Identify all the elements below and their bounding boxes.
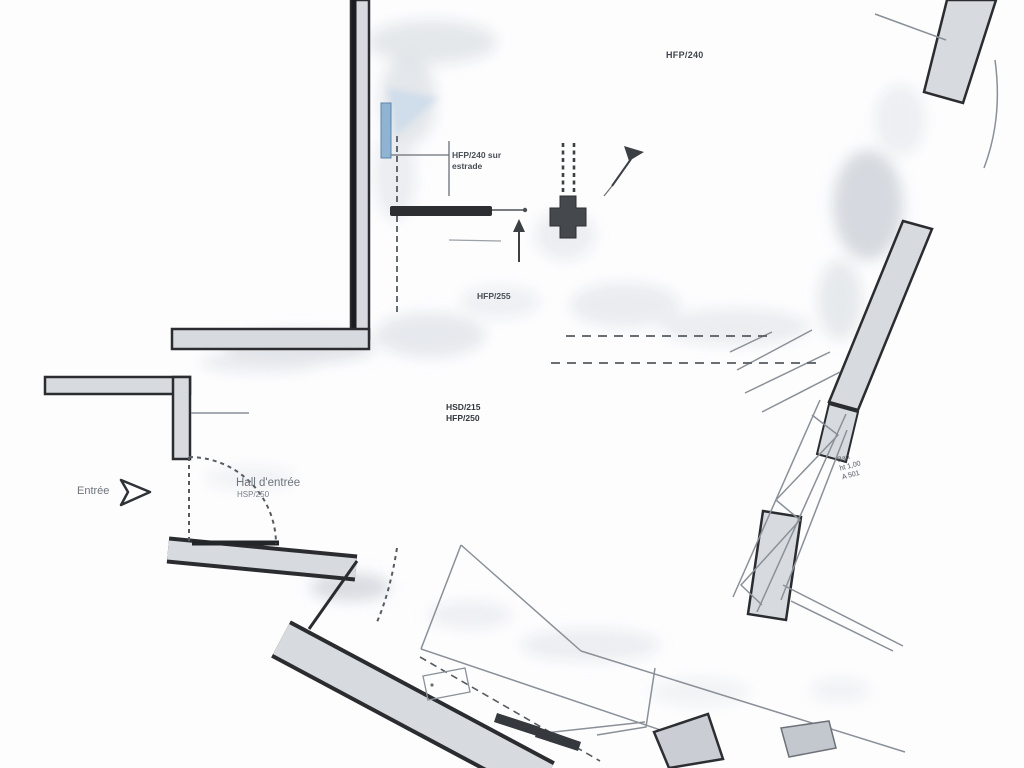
wall-entry-horizontal [45, 377, 190, 394]
floor-plan-scan: HFP/240 HFP/240 sur estrade HFP/255 HSD/… [0, 0, 1024, 768]
topright-thin-wall-line [875, 14, 946, 40]
dashed-lines [189, 136, 823, 761]
scan-smudges [200, 20, 925, 706]
dark-bar-2 [535, 727, 581, 751]
wall-bottom-diagonal-fill [281, 639, 545, 768]
flag-marker [604, 146, 644, 196]
label-entrance: Entrée [77, 485, 109, 497]
topright-door-arc [984, 60, 997, 168]
label-hall-2: HSP/250 [237, 490, 270, 499]
label-estrade-2: estrade [452, 161, 483, 171]
label-bench: Ban ht 1,00 A 501 [837, 452, 864, 482]
platform-edge [545, 722, 645, 733]
stage-diagonal-edge [461, 545, 581, 651]
label-estrade-1: HFP/240 sur [452, 150, 502, 160]
label-room-main-1: HSD/215 [446, 402, 481, 412]
label-hall-1: Hall d'entrée [236, 477, 300, 489]
wall-entry-vertical [173, 377, 190, 459]
small-slab [781, 721, 836, 757]
wall-topright [924, 0, 996, 103]
label-room-mid: HFP/255 [477, 291, 511, 301]
labels: HFP/240 HFP/240 sur estrade HFP/255 HSD/… [77, 50, 864, 499]
tilted-column [654, 714, 723, 768]
wall-topleft-horizontal [172, 329, 369, 349]
stage-long-edge [581, 651, 905, 752]
counter-sub-line [449, 240, 501, 241]
stage-left-edge [421, 545, 461, 649]
label-room-top: HFP/240 [666, 50, 704, 60]
bottomright-line-1 [783, 585, 903, 646]
counter-extension-dot [523, 208, 527, 212]
up-arrow [513, 219, 525, 262]
blue-marker [381, 103, 391, 158]
bottomright-line-2 [791, 601, 893, 651]
dark-bar-1 [494, 713, 540, 736]
entrance-arrow-icon [121, 480, 150, 505]
floor-plan-canvas: HFP/240 HFP/240 sur estrade HFP/255 HSD/… [0, 0, 1024, 768]
counter-bar [390, 206, 492, 216]
label-room-main-2: HFP/250 [446, 413, 480, 423]
fixtures [121, 88, 836, 768]
